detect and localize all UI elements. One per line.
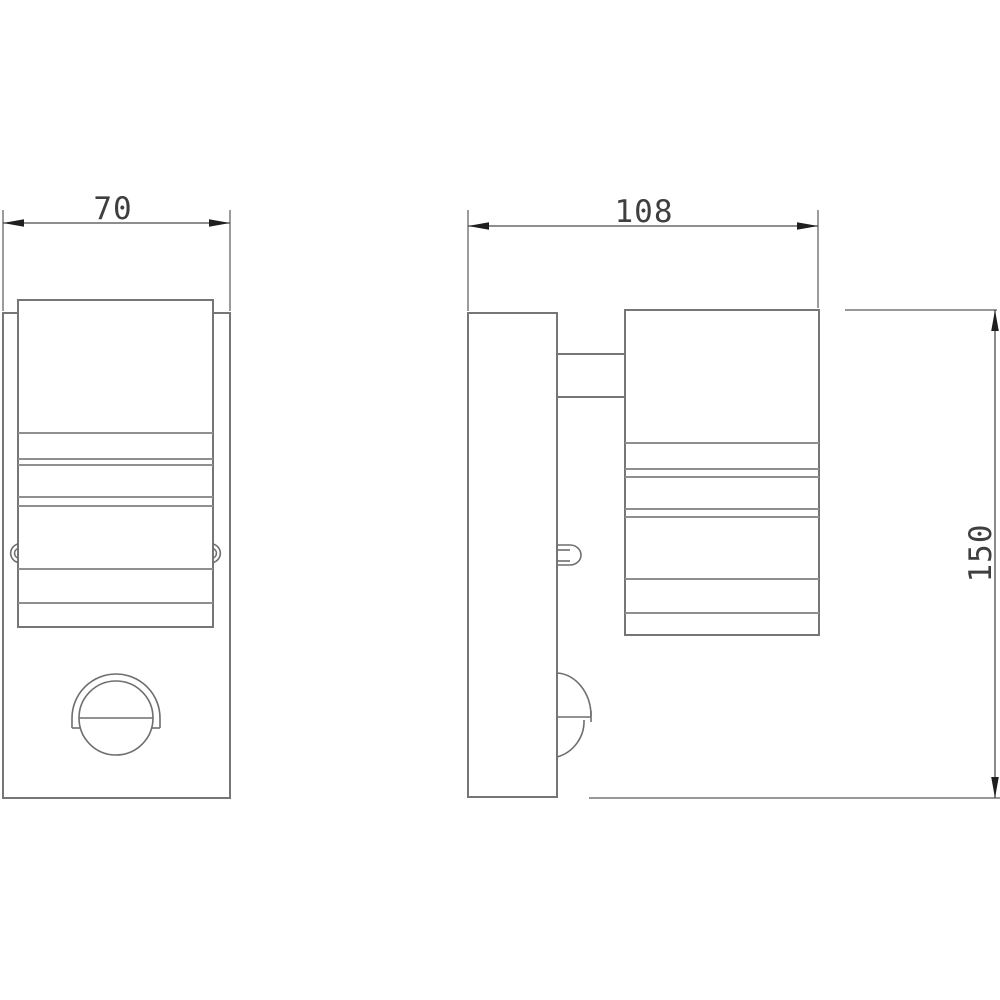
mounting-clip-side <box>557 545 581 565</box>
arrowhead-right-icon <box>209 219 230 227</box>
sensor-lower-arc <box>557 720 584 757</box>
dimension-front-width: 70 <box>3 191 230 311</box>
front-view: 70 <box>3 191 230 798</box>
motion-sensor-side <box>557 673 591 757</box>
side-lamp-body <box>625 310 819 635</box>
arrowhead-down-icon <box>991 777 999 798</box>
dimension-value-front-width: 70 <box>93 191 132 227</box>
technical-drawing-page: 70 <box>0 0 1000 1000</box>
arrowhead-up-icon <box>991 310 999 331</box>
dimension-value-side-depth: 108 <box>615 194 674 230</box>
technical-drawing-canvas: 70 <box>0 0 1000 1000</box>
dimension-value-side-height: 150 <box>963 524 999 583</box>
front-lamp-body <box>18 300 213 627</box>
arrowhead-right-icon <box>797 222 818 230</box>
side-backplate <box>468 313 557 797</box>
arrowhead-left-icon <box>468 222 489 230</box>
side-mount-arm <box>557 354 625 397</box>
arrowhead-left-icon <box>3 219 24 227</box>
side-view: 108 150 <box>468 194 1000 798</box>
dimension-side-depth: 108 <box>468 194 818 311</box>
sensor-upper-arc <box>557 673 591 716</box>
